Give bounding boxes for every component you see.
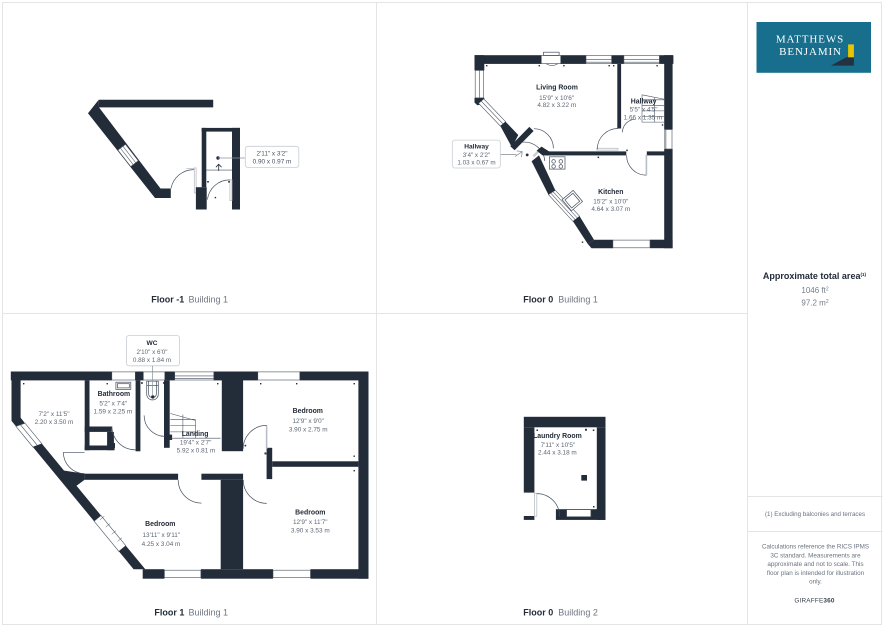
svg-text:3.90 x 3.53 m: 3.90 x 3.53 m bbox=[291, 527, 330, 534]
svg-text:Bedroom: Bedroom bbox=[293, 408, 323, 415]
svg-text:3C standard. Measurements are: 3C standard. Measurements are bbox=[770, 552, 861, 559]
svg-text:1.66 x 1.35 m: 1.66 x 1.35 m bbox=[624, 114, 663, 121]
svg-text:Floor -1: Floor -1 bbox=[151, 295, 184, 305]
svg-text:5.92 x 0.81 m: 5.92 x 0.81 m bbox=[177, 447, 216, 454]
svg-text:1046 ft2: 1046 ft2 bbox=[801, 286, 828, 295]
svg-text:Laundry Room: Laundry Room bbox=[533, 433, 582, 440]
svg-text:3'4" x 2'2": 3'4" x 2'2" bbox=[463, 152, 491, 159]
svg-text:2.20 x 3.50 m: 2.20 x 3.50 m bbox=[35, 419, 74, 426]
svg-text:Building 2: Building 2 bbox=[558, 608, 598, 618]
svg-text:Building 1: Building 1 bbox=[189, 295, 229, 305]
svg-text:13'11" x 9'11": 13'11" x 9'11" bbox=[142, 532, 180, 539]
svg-text:3.90 x 2.75 m: 3.90 x 2.75 m bbox=[289, 426, 328, 433]
svg-text:97.2 m2: 97.2 m2 bbox=[801, 298, 828, 307]
svg-text:0.88 x 1.84 m: 0.88 x 1.84 m bbox=[133, 357, 171, 364]
svg-text:7'11" x 10'5": 7'11" x 10'5" bbox=[541, 442, 576, 449]
svg-text:2'10" x 6'0": 2'10" x 6'0" bbox=[136, 349, 167, 356]
svg-text:Hallway: Hallway bbox=[464, 143, 489, 150]
svg-text:19'4" x 2'7": 19'4" x 2'7" bbox=[180, 439, 212, 446]
svg-text:Bedroom: Bedroom bbox=[295, 510, 325, 517]
svg-text:Building 1: Building 1 bbox=[558, 295, 598, 305]
svg-text:Bedroom: Bedroom bbox=[145, 521, 175, 528]
svg-text:Calculations reference the RIC: Calculations reference the RICS IPMS bbox=[762, 544, 869, 551]
svg-text:only.: only. bbox=[809, 579, 822, 586]
svg-text:MATTHEWS: MATTHEWS bbox=[776, 33, 844, 45]
svg-text:Landing: Landing bbox=[182, 431, 209, 438]
svg-text:Floor 0: Floor 0 bbox=[523, 295, 553, 305]
svg-text:GIRAFFE360: GIRAFFE360 bbox=[794, 597, 835, 604]
svg-text:7'2" x 11'5": 7'2" x 11'5" bbox=[38, 411, 69, 418]
svg-text:4.82 x 3.22 m: 4.82 x 3.22 m bbox=[537, 102, 576, 109]
svg-text:(1) Excluding balconies and te: (1) Excluding balconies and terraces bbox=[765, 511, 865, 518]
svg-text:Hallway: Hallway bbox=[631, 99, 657, 106]
svg-text:12'9" x 9'0": 12'9" x 9'0" bbox=[292, 418, 324, 425]
svg-text:approximate and not to scale.: approximate and not to scale. This bbox=[767, 561, 863, 568]
svg-text:1.03 x 0.67 m: 1.03 x 0.67 m bbox=[457, 160, 495, 167]
svg-text:15'2" x 10'0": 15'2" x 10'0" bbox=[593, 198, 628, 205]
svg-text:Floor 1: Floor 1 bbox=[154, 608, 184, 618]
svg-text:1.59 x 2.25 m: 1.59 x 2.25 m bbox=[94, 409, 133, 416]
svg-text:0.90 x 0.97 m: 0.90 x 0.97 m bbox=[253, 158, 292, 165]
svg-text:4.64 x 3.07 m: 4.64 x 3.07 m bbox=[591, 206, 630, 213]
svg-text:WC: WC bbox=[147, 340, 158, 347]
svg-text:2'11" x 3'2": 2'11" x 3'2" bbox=[256, 150, 287, 157]
svg-text:2.44 x 3.18 m: 2.44 x 3.18 m bbox=[538, 449, 577, 456]
svg-text:floor plan is intended for ill: floor plan is intended for illustration bbox=[767, 570, 865, 577]
svg-text:Bathroom: Bathroom bbox=[98, 391, 131, 398]
svg-text:Kitchen: Kitchen bbox=[598, 189, 623, 196]
svg-text:BENJAMIN: BENJAMIN bbox=[779, 46, 842, 58]
svg-text:Approximate total area(1): Approximate total area(1) bbox=[763, 271, 867, 281]
svg-text:5'5" x 4'5": 5'5" x 4'5" bbox=[630, 107, 658, 114]
svg-text:5'2" x 7'4": 5'2" x 7'4" bbox=[99, 401, 127, 408]
svg-text:4.25 x 3.04 m: 4.25 x 3.04 m bbox=[142, 541, 181, 548]
svg-text:Building 1: Building 1 bbox=[189, 608, 229, 618]
svg-text:Living Room: Living Room bbox=[536, 85, 578, 92]
svg-text:15'9" x 10'6": 15'9" x 10'6" bbox=[539, 95, 574, 102]
svg-text:Floor 0: Floor 0 bbox=[523, 608, 553, 618]
svg-text:12'9" x 11'7": 12'9" x 11'7" bbox=[293, 519, 328, 526]
